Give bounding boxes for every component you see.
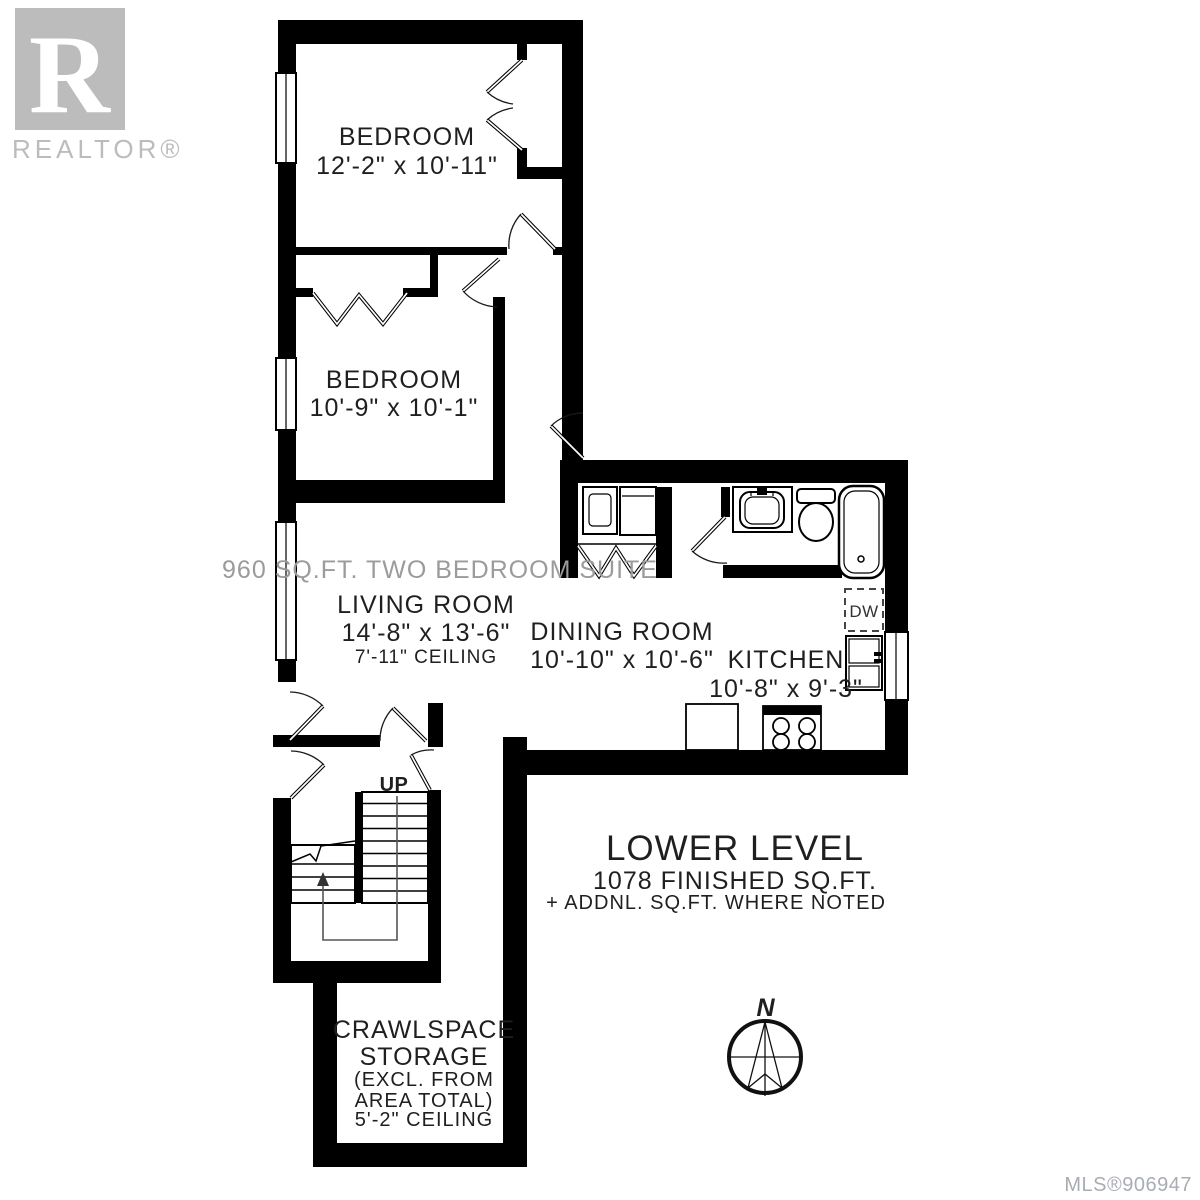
kitchen-dims: 10'-8" x 9'-3" — [709, 675, 863, 703]
suite-note: 960 SQ.FT. TWO BEDROOM SUITE — [222, 556, 658, 584]
wall-segment — [278, 20, 583, 44]
burner — [799, 718, 815, 734]
living-name: LIVING ROOM — [337, 591, 515, 619]
kitchen-counter — [686, 704, 738, 750]
level-summary: LOWER LEVEL 1078 FINISHED SQ.FT. + ADDNL… — [546, 829, 886, 914]
burner — [773, 718, 789, 734]
door-jamb — [721, 487, 730, 517]
closet-double-door — [487, 60, 522, 150]
kitchen-name: KITCHEN — [728, 646, 845, 674]
wall-segment — [278, 163, 296, 358]
fridge-handle — [874, 652, 883, 656]
living-dims: 14'-8" x 13'-6" — [342, 619, 511, 647]
window — [276, 522, 296, 660]
wall-segment — [278, 44, 296, 73]
wall-segment — [885, 700, 908, 752]
bedroom2-dims: 10'-9" x 10'-1" — [310, 394, 479, 422]
wall-segment — [517, 167, 583, 179]
wall-segment — [273, 798, 291, 983]
mls-number: MLS®906947 — [1064, 1174, 1192, 1196]
burner — [799, 734, 815, 750]
laundry-fixtures — [583, 487, 656, 535]
wall-segment — [428, 790, 441, 983]
wall-segment — [656, 487, 672, 578]
faucet-icon — [757, 488, 767, 495]
floor-plan-canvas: BEDROOM 12'-2" x 10'-11" BEDROOM 10'-9" … — [0, 0, 1200, 1200]
crawlspace-line5: 5'-2" CEILING — [355, 1109, 493, 1131]
toilet-tank — [797, 489, 835, 503]
wall-segment — [296, 247, 507, 255]
door-bathroom — [692, 517, 727, 563]
window — [276, 358, 296, 430]
wall-segment — [493, 297, 505, 483]
toilet-bowl — [799, 503, 833, 541]
stair-upper-flight — [362, 792, 428, 903]
door-hall-right — [411, 750, 434, 790]
crawlspace-line1: CRAWLSPACE — [333, 1016, 515, 1044]
floor-plan-svg: BEDROOM 12'-2" x 10'-11" BEDROOM 10'-9" … — [0, 0, 1200, 1200]
wall-segment — [723, 565, 842, 578]
crawlspace-line2: STORAGE — [360, 1043, 489, 1071]
level-area: 1078 FINISHED SQ.FT. — [593, 867, 877, 895]
wall-segment — [560, 460, 908, 483]
wall-segment — [503, 750, 908, 775]
wall-segment — [273, 735, 380, 747]
crawlspace-line3: (EXCL. FROM — [354, 1069, 494, 1091]
wall-segment — [273, 961, 440, 983]
burner — [773, 734, 789, 750]
wall-segment — [313, 983, 337, 1167]
dryer — [620, 487, 656, 535]
closet-bifold-door — [313, 293, 407, 324]
compass: N — [729, 994, 801, 1096]
wall-segment — [503, 737, 527, 1167]
wall-segment — [296, 288, 313, 297]
wall-segment — [313, 1143, 525, 1167]
realtor-logo-initial: R — [29, 13, 111, 137]
wall-segment — [885, 483, 908, 632]
level-title: LOWER LEVEL — [606, 829, 864, 868]
bathtub — [839, 486, 884, 578]
wall-segment — [278, 430, 296, 522]
wall-segment — [278, 660, 296, 682]
wall-segment — [562, 20, 583, 463]
wall-segment — [430, 255, 438, 297]
door-living-to-hall — [380, 708, 426, 741]
door-hall-entry — [291, 751, 324, 798]
branding: R REALTOR® — [12, 8, 184, 164]
bedroom1-name: BEDROOM — [339, 123, 475, 151]
realtor-logo-word: REALTOR® — [12, 134, 184, 164]
compass-north-label: N — [756, 994, 775, 1022]
bedroom2-name: BEDROOM — [326, 366, 462, 394]
closet-jamb — [517, 44, 527, 60]
window — [885, 632, 908, 700]
fridge-handle — [874, 659, 883, 663]
door-bedroom1 — [509, 214, 555, 249]
living-ceiling-note: 7'-11" CEILING — [355, 647, 497, 668]
stairs-up-label: UP — [380, 774, 409, 796]
dining-dims: 10'-10" x 10'-6" — [530, 646, 714, 674]
window — [276, 73, 296, 163]
door-jamb — [428, 703, 443, 747]
dining-name: DINING ROOM — [530, 618, 713, 646]
dishwasher-label: DW — [849, 602, 878, 621]
door-living-side — [290, 692, 323, 740]
level-note: + ADDNL. SQ.FT. WHERE NOTED — [546, 892, 886, 914]
bedroom1-dims: 12'-2" x 10'-11" — [316, 152, 498, 180]
closet-jamb — [517, 148, 527, 167]
stair-divider-wall — [355, 792, 362, 903]
bathroom-fixtures — [733, 486, 884, 578]
wall-segment — [278, 480, 505, 503]
